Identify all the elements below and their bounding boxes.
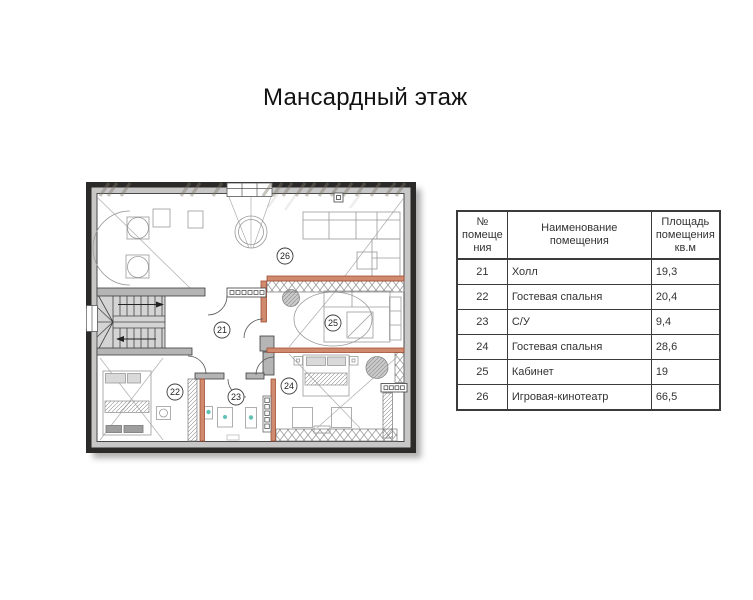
table-row: 24Гостевая спальня28,6: [457, 335, 720, 360]
table-row: 26Игровая-кинотеатр66,5: [457, 385, 720, 411]
room-number: 24: [457, 335, 507, 360]
column: [334, 193, 343, 202]
floor-plan: 212223242526: [86, 182, 416, 453]
room-number: 22: [457, 285, 507, 310]
header-room-name: Наименование помещения: [507, 211, 651, 259]
room-name: С/У: [507, 310, 651, 335]
table-row: 22Гостевая спальня20,4: [457, 285, 720, 310]
room-name: Гостевая спальня: [507, 335, 651, 360]
room-area: 9,4: [651, 310, 719, 335]
room-label-number: 24: [284, 381, 294, 391]
room-label-number: 26: [280, 251, 290, 261]
table-row: 23С/У9,4: [457, 310, 720, 335]
room-name: Гостевая спальня: [507, 285, 651, 310]
room-number: 26: [457, 385, 507, 411]
table-row: 21Холл19,3: [457, 259, 720, 285]
room-area-table: № помеще ния Наименование помещения Площ…: [456, 210, 721, 411]
room-label-number: 22: [170, 387, 180, 397]
floor-plan-drawing: 212223242526: [86, 182, 416, 453]
room-area: 20,4: [651, 285, 719, 310]
room-name: Кабинет: [507, 360, 651, 385]
room-label-number: 21: [217, 325, 227, 335]
room-area: 19,3: [651, 259, 719, 285]
page-title: Мансардный этаж: [263, 84, 467, 112]
room-label-number: 23: [231, 392, 241, 402]
room-number: 25: [457, 360, 507, 385]
staircase: [97, 293, 165, 352]
room-number: 23: [457, 310, 507, 335]
header-room-area: Площадь помещения кв.м: [651, 211, 719, 259]
room-area: 66,5: [651, 385, 719, 411]
room-label-number: 25: [328, 318, 338, 328]
table-row: 25Кабинет19: [457, 360, 720, 385]
header-room-number: № помеще ния: [457, 211, 507, 259]
table-header-row: № помеще ния Наименование помещения Площ…: [457, 211, 720, 259]
room-number: 21: [457, 259, 507, 285]
room-area-table-body: 21Холл19,322Гостевая спальня20,423С/У9,4…: [457, 259, 720, 410]
room-name: Игровая-кинотеатр: [507, 385, 651, 411]
room-name: Холл: [507, 259, 651, 285]
room-area: 19: [651, 360, 719, 385]
room-area: 28,6: [651, 335, 719, 360]
